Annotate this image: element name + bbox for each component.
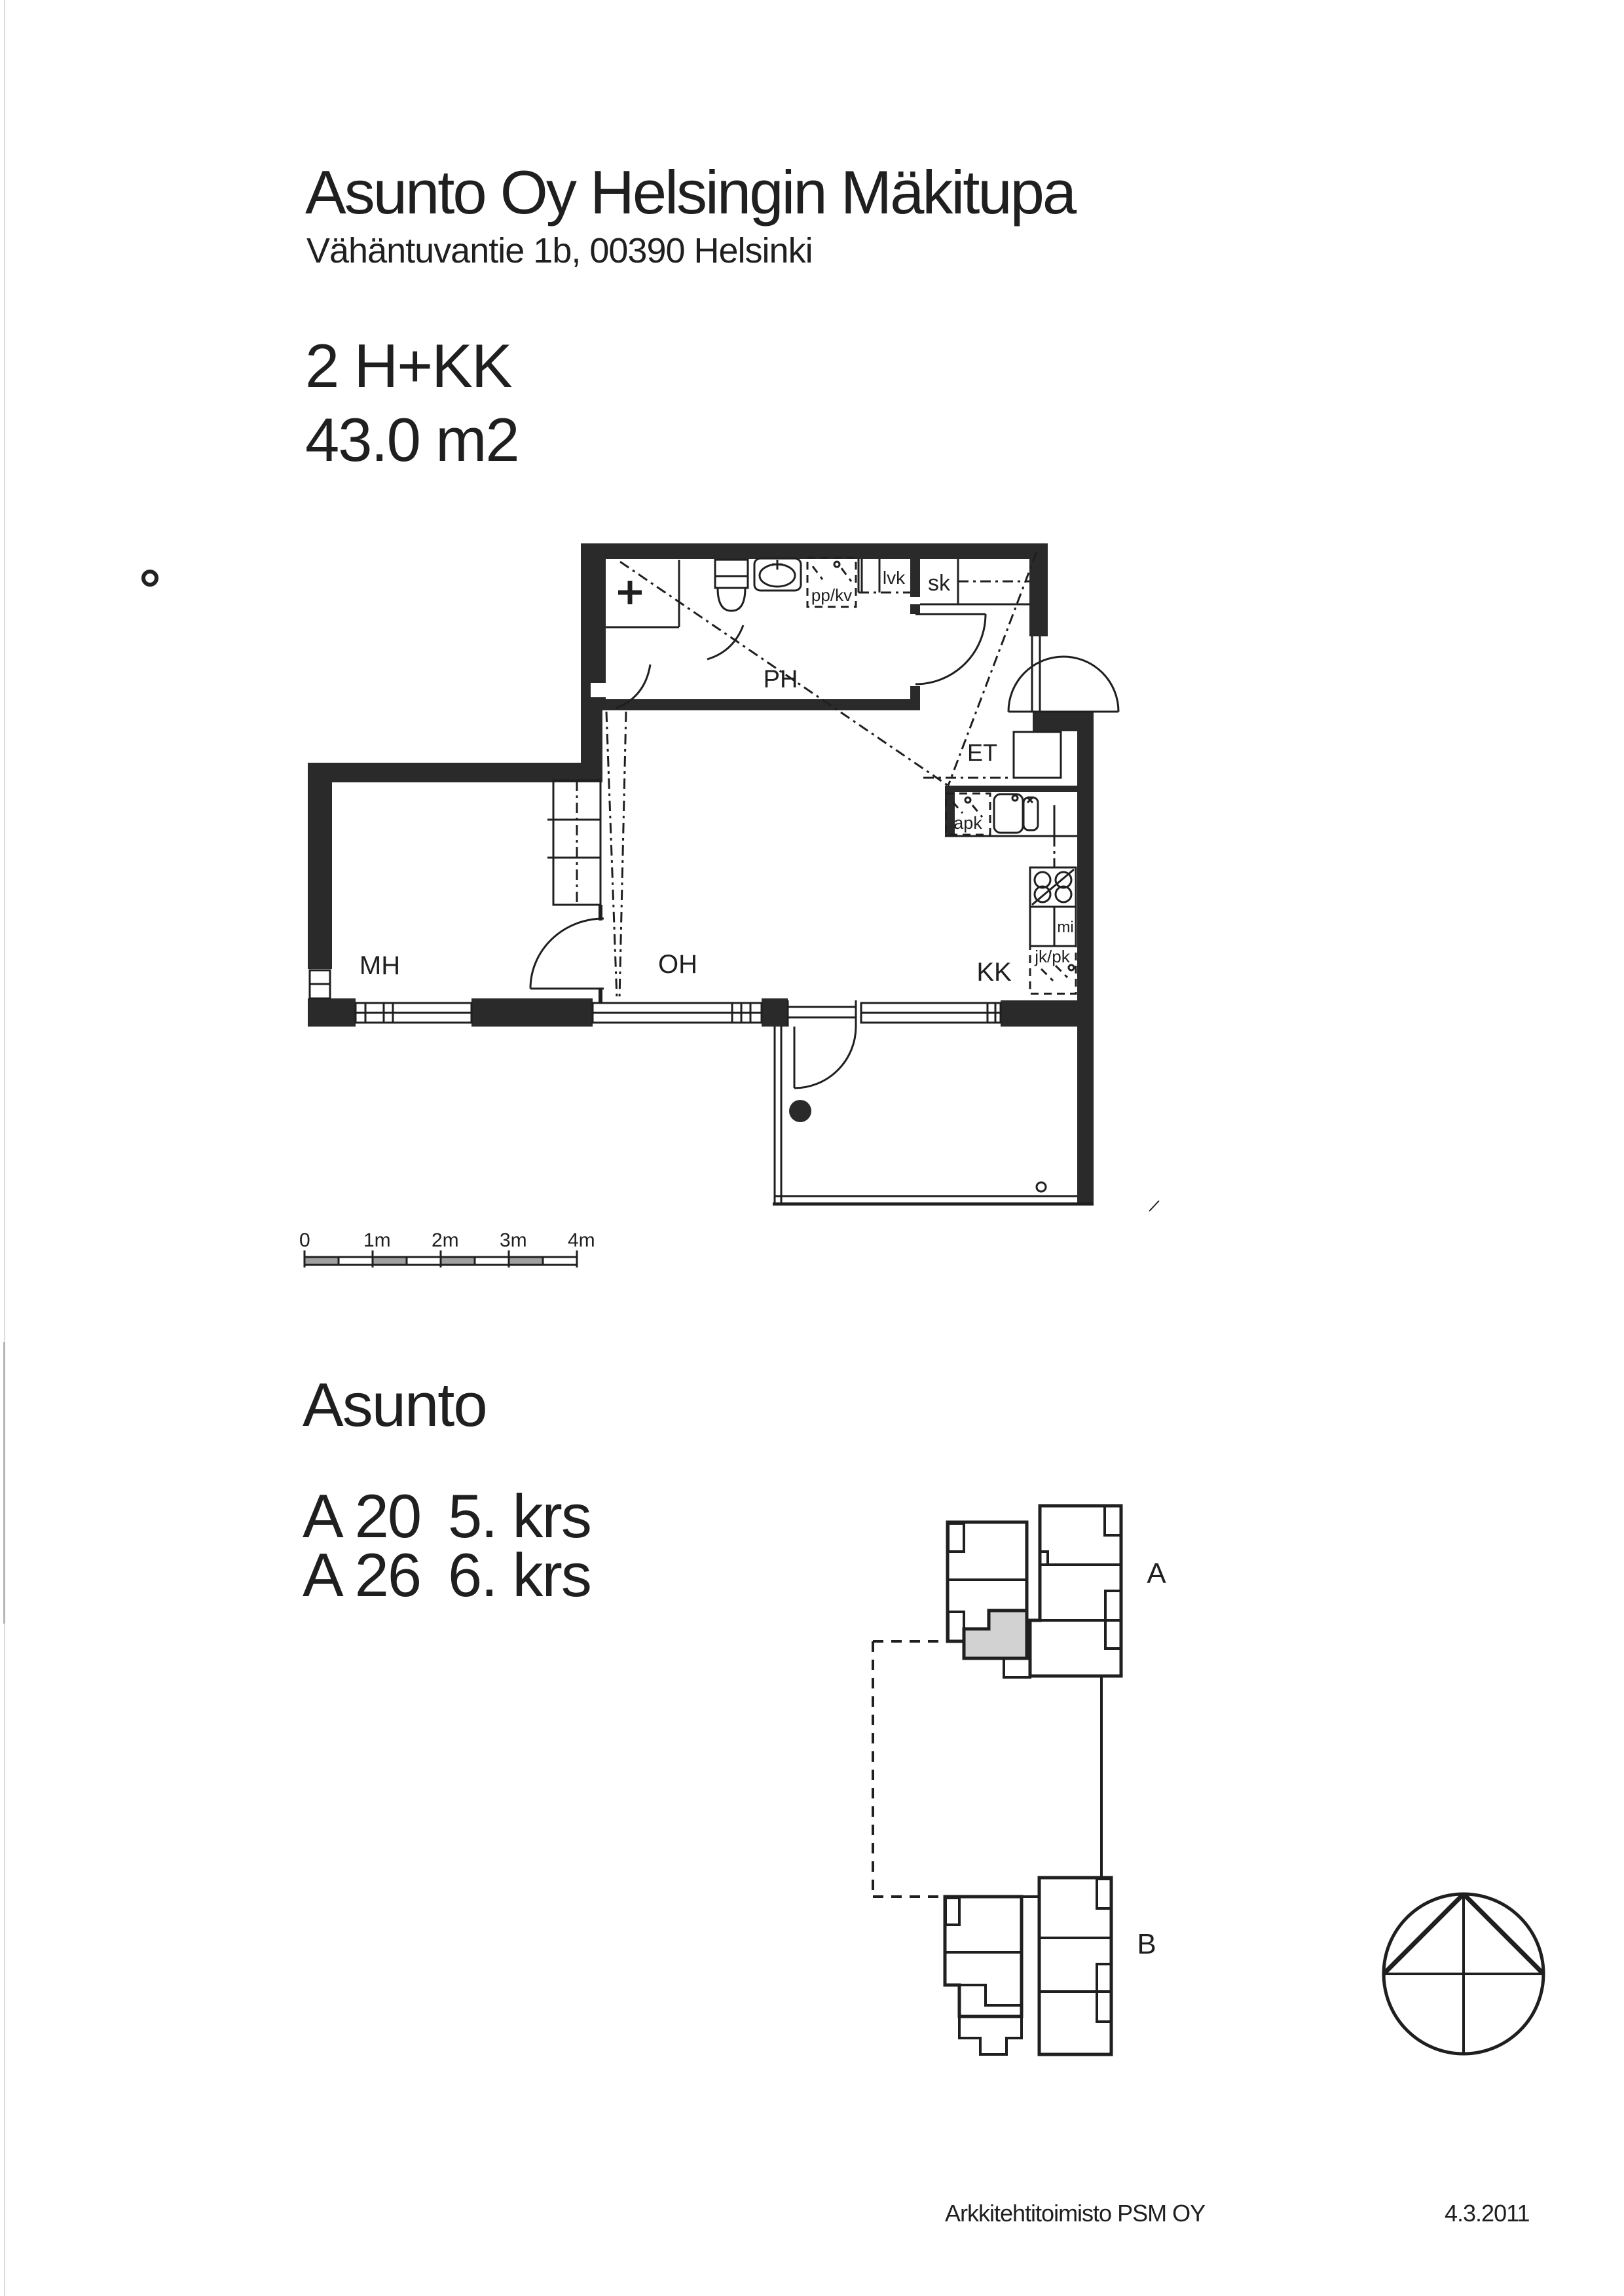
north-arrow-icon (1372, 1882, 1555, 2066)
unit-row-a26: A 26 6. krs (303, 1540, 761, 1600)
punch-hole-mark (141, 570, 158, 587)
scan-artifact-line-dark (3, 1342, 5, 1624)
windows (310, 970, 1001, 1023)
floor-plan-drawing: MH OH KK PH ET sk lvk pp/kv apk mi jk/pk (288, 530, 1179, 1303)
floor-plan-document-page: { "header": { "title": "Asunto Oy Helsin… (0, 0, 1624, 2296)
section-lines (606, 552, 1054, 998)
scan-artifact-line (4, 0, 5, 2296)
stray-mark (1149, 1201, 1159, 1211)
apartment-area: 43.0 m2 (305, 405, 519, 475)
balcony-small-circle (1037, 1182, 1046, 1192)
apartment-list-heading: Asunto (303, 1370, 487, 1440)
courtyard-dashed-boundary (873, 1641, 948, 1897)
walls (308, 543, 1094, 1205)
bathroom-fixtures (606, 558, 856, 708)
kk-window (861, 1003, 1001, 1023)
housing-company-title: Asunto Oy Helsingin Mäkitupa (305, 157, 1075, 228)
fixture-label-jkpk: jk/pk (1034, 947, 1070, 966)
fixture-label-mi: mi (1057, 919, 1073, 936)
unit-row-a20: A 20 5. krs (303, 1481, 761, 1541)
ppkv-point (834, 562, 840, 567)
washbasin-icon (754, 558, 801, 591)
room-label-oh: OH (658, 950, 697, 979)
unit-floor: 6. krs (448, 1540, 591, 1611)
mh-door-arc (530, 919, 604, 989)
fixture-label-apk: apk (953, 813, 982, 833)
apartment-type: 2 H+KK (305, 331, 511, 401)
fixture-label-ppkv: pp/kv (811, 585, 852, 605)
scale-label-0: 0 (299, 1230, 310, 1251)
oh-window (593, 1003, 762, 1023)
architect-credit: Arkkitehtitoimisto PSM OY (945, 2200, 1205, 2227)
room-label-et: ET (967, 739, 997, 766)
document-date: 4.3.2011 (1445, 2200, 1529, 2227)
room-label-mh: MH (360, 951, 400, 980)
entrance-door-arc (1008, 657, 1118, 712)
stairwell-b-label: B (1137, 1928, 1156, 1960)
scale-label-1m: 1m (363, 1230, 391, 1251)
stove-icon (1030, 867, 1076, 907)
shower-cross-icon (618, 581, 642, 604)
scale-label-4m: 4m (568, 1230, 595, 1251)
fixture-label-sk: sk (928, 571, 951, 596)
et-closet (1014, 732, 1061, 778)
building-b-outline (945, 1878, 1111, 2054)
building-a-outline (948, 1506, 1121, 1677)
street-address: Vähäntuvantie 1b, 00390 Helsinki (306, 230, 813, 271)
highlighted-apartment (964, 1611, 1027, 1658)
site-key-plan: A B (871, 1493, 1185, 2069)
toilet-icon (715, 560, 748, 611)
unit-id: A 26 (303, 1540, 420, 1611)
room-label-ph: PH (764, 666, 798, 693)
balcony-drain-dot (789, 1100, 811, 1122)
scale-label-2m: 2m (432, 1230, 459, 1251)
scale-label-3m: 3m (500, 1230, 527, 1251)
scale-bar: 0 1m 2m 3m 4m (298, 1230, 606, 1275)
balcony (773, 1027, 1159, 1211)
fixture-label-lvk: lvk (883, 568, 906, 588)
room-label-kk: KK (976, 958, 1012, 987)
wardrobe (547, 780, 600, 905)
mh-window (356, 1003, 471, 1023)
stairwell-a-label: A (1147, 1558, 1166, 1590)
mh-side-window (310, 970, 330, 998)
balcony-door-arc (794, 1027, 856, 1088)
kitchen-sink-icon (994, 794, 1038, 833)
